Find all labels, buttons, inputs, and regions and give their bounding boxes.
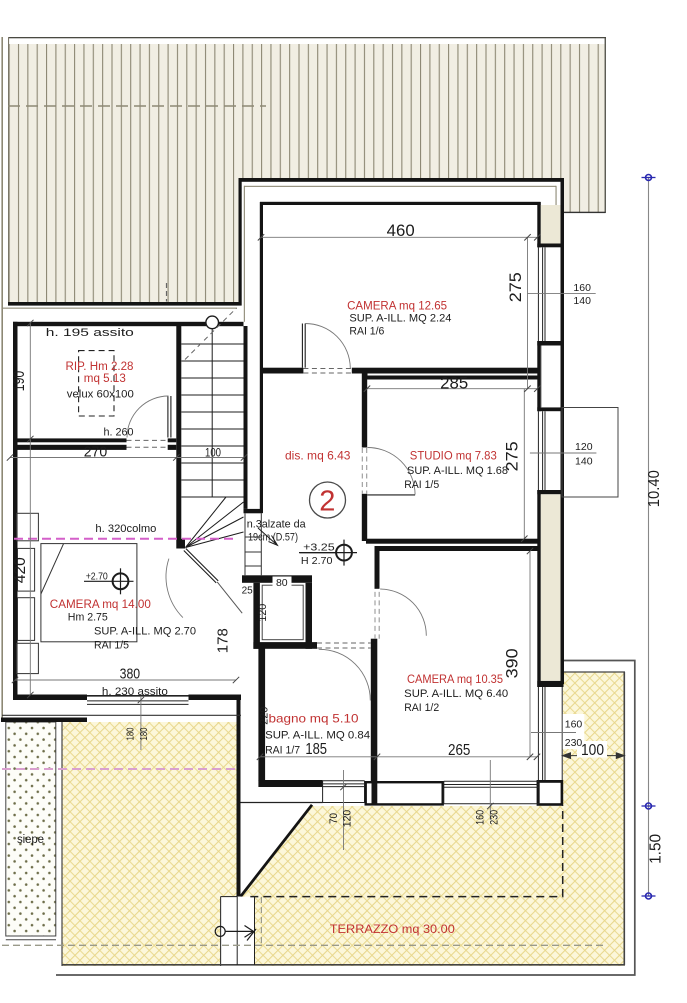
svg-text:100: 100	[205, 448, 221, 460]
svg-text:140: 140	[573, 295, 591, 307]
svg-text:460: 460	[387, 222, 415, 240]
svg-text:230: 230	[489, 810, 501, 825]
svg-text:RAI 1/6: RAI 1/6	[349, 326, 384, 338]
svg-text:h. 260: h. 260	[104, 426, 134, 438]
svg-text:mq 5.13: mq 5.13	[84, 373, 126, 385]
svg-text:+3.25: +3.25	[303, 542, 335, 554]
svg-text:140: 140	[575, 456, 593, 468]
svg-text:380: 380	[120, 666, 141, 683]
svg-text:h. 230 assito: h. 230 assito	[102, 686, 168, 698]
svg-text:RAI 1/5: RAI 1/5	[404, 479, 439, 491]
svg-text:2: 2	[319, 486, 335, 518]
svg-text:390: 390	[504, 648, 522, 678]
svg-text:CAMERA mq 14.00: CAMERA mq 14.00	[50, 597, 151, 611]
svg-text:dis. mq 6.43: dis. mq 6.43	[285, 449, 351, 463]
svg-text:1.50: 1.50	[648, 834, 665, 864]
svg-text:19cm (D.57): 19cm (D.57)	[248, 532, 298, 544]
svg-text:270: 270	[84, 445, 108, 461]
svg-text:siepe: siepe	[17, 834, 44, 846]
svg-text:+2.70: +2.70	[86, 570, 108, 582]
svg-text:TERRAZZO mq 30.00: TERRAZZO mq 30.00	[330, 922, 455, 936]
svg-text:70: 70	[328, 813, 340, 824]
svg-text:160: 160	[475, 810, 487, 825]
svg-text:Hm 2.75: Hm 2.75	[68, 612, 108, 624]
svg-text:420: 420	[12, 557, 29, 583]
svg-text:275: 275	[504, 441, 522, 471]
svg-text:SUP. A-ILL. MQ 2.24: SUP. A-ILL. MQ 2.24	[349, 313, 451, 325]
svg-text:SUP. A-ILL. MQ 2.70: SUP. A-ILL. MQ 2.70	[94, 626, 196, 638]
svg-text:CAMERA mq 12.65: CAMERA mq 12.65	[347, 299, 447, 313]
svg-text:80: 80	[276, 577, 288, 589]
svg-text:RAI 1/5: RAI 1/5	[94, 639, 129, 651]
svg-text:160: 160	[565, 719, 583, 731]
svg-text:H 2.70: H 2.70	[301, 555, 333, 567]
svg-text:265: 265	[448, 742, 470, 759]
svg-text:SUP. A-ILL. MQ 6.40: SUP. A-ILL. MQ 6.40	[404, 688, 508, 700]
svg-text:275: 275	[507, 272, 525, 302]
svg-text:230: 230	[565, 737, 583, 749]
svg-text:RIP. Hm 2.28: RIP. Hm 2.28	[66, 361, 134, 373]
svg-text:h. 320colmo: h. 320colmo	[95, 523, 156, 535]
svg-text:n.3alzate da: n.3alzate da	[247, 519, 307, 531]
svg-text:SUP. A-ILL. MQ 0.84: SUP. A-ILL. MQ 0.84	[265, 729, 370, 741]
svg-text:120: 120	[257, 604, 269, 622]
svg-text:178: 178	[216, 628, 232, 653]
svg-text:STUDIO mq 7.83: STUDIO mq 7.83	[410, 449, 497, 463]
svg-text:CAMERA mq 10.35: CAMERA mq 10.35	[407, 672, 503, 686]
svg-text:bagno mq 5.10: bagno mq 5.10	[269, 711, 359, 725]
svg-text:180: 180	[125, 727, 137, 740]
svg-text:RAI 1/7: RAI 1/7	[265, 744, 300, 756]
svg-text:185: 185	[305, 741, 327, 758]
svg-text:285: 285	[440, 375, 468, 393]
svg-text:120: 120	[575, 441, 593, 453]
svg-text:RAI 1/2: RAI 1/2	[404, 702, 439, 714]
svg-text:120: 120	[341, 810, 353, 828]
svg-text:SUP. A-ILL. MQ 1.68: SUP. A-ILL. MQ 1.68	[407, 465, 508, 477]
svg-text:190: 190	[11, 371, 28, 392]
svg-text:100: 100	[581, 742, 604, 759]
svg-text:velux 60x100: velux 60x100	[67, 389, 134, 401]
svg-text:160: 160	[573, 282, 591, 294]
svg-text:180: 180	[138, 727, 150, 740]
svg-text:10.40: 10.40	[646, 470, 663, 507]
svg-text:25: 25	[242, 585, 254, 596]
svg-text:220: 220	[259, 707, 271, 725]
svg-text:h. 195 assito: h. 195 assito	[46, 327, 134, 339]
